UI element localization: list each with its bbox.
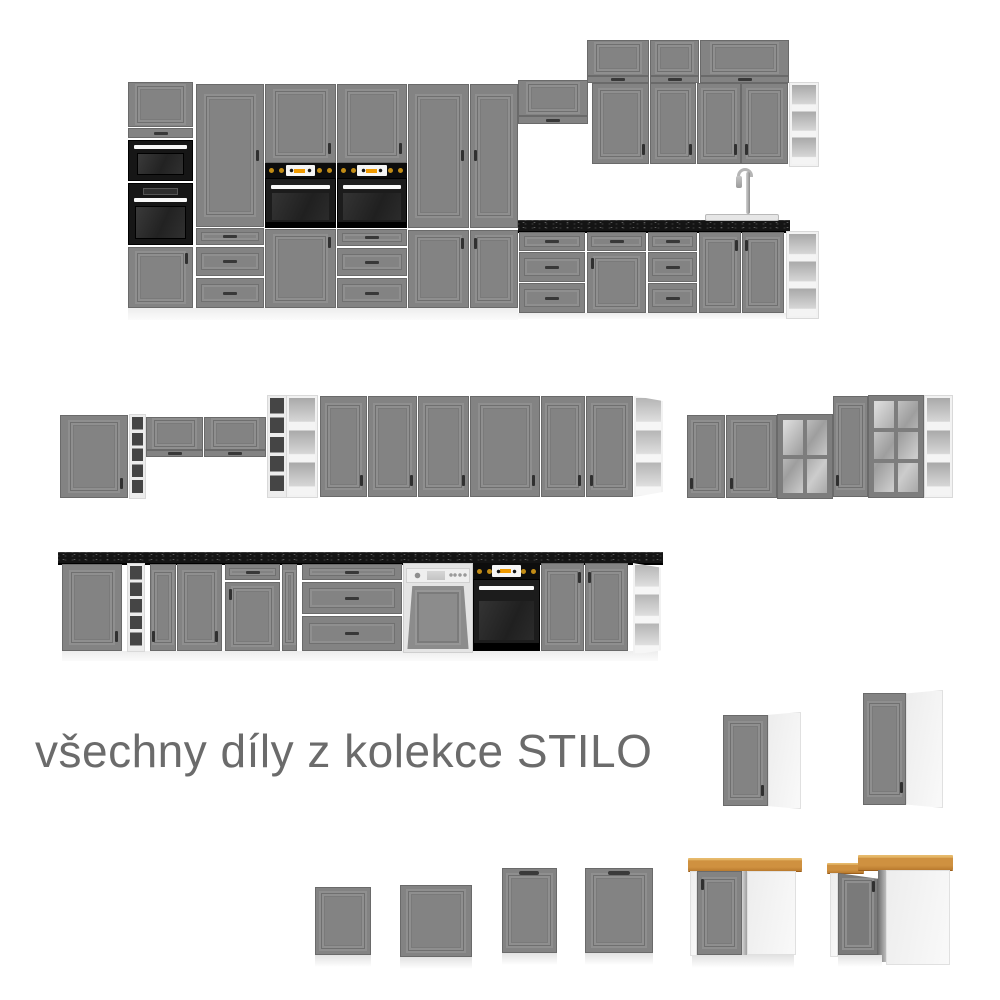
corner-base-cabinet-door bbox=[838, 873, 878, 955]
cabinet-door bbox=[470, 230, 518, 308]
corner-front-panel bbox=[886, 870, 950, 965]
built-in-microwave bbox=[128, 140, 193, 181]
wall-cabinet-door bbox=[418, 396, 469, 497]
flip-door-strip bbox=[204, 450, 266, 457]
panel-base bbox=[502, 953, 557, 965]
oven-control-strip bbox=[337, 163, 407, 178]
oak-worktop bbox=[858, 855, 953, 870]
drawer-front bbox=[648, 232, 697, 251]
faucet-spray-head bbox=[736, 176, 742, 188]
open-shelf-unit bbox=[287, 396, 317, 497]
drawer-front bbox=[196, 228, 264, 245]
oven-handle bbox=[479, 586, 535, 590]
drawer-front bbox=[648, 283, 697, 313]
drawer-front bbox=[302, 616, 402, 651]
oven-control-strip bbox=[265, 163, 336, 178]
blind-panel bbox=[747, 871, 796, 955]
flip-up-wall-door bbox=[204, 417, 266, 450]
open-shelf-unit bbox=[925, 396, 952, 497]
cabinet-door bbox=[337, 84, 407, 163]
drawer-front bbox=[337, 278, 407, 308]
base-cabinet-door bbox=[587, 252, 646, 313]
panel-handle bbox=[608, 871, 630, 875]
corner-wall-cabinet-door bbox=[723, 715, 768, 806]
side-panel bbox=[690, 871, 697, 956]
flip-up-wall-door bbox=[700, 40, 789, 76]
filler-door bbox=[282, 564, 297, 651]
drawer-front bbox=[337, 229, 407, 246]
base-cabinet-door bbox=[585, 563, 628, 651]
cabinet-door bbox=[265, 229, 336, 308]
drawer-front bbox=[225, 564, 280, 580]
oven-handle bbox=[134, 198, 187, 202]
panel-base bbox=[400, 957, 472, 969]
drawer-front bbox=[337, 248, 407, 276]
drawer-front bbox=[648, 252, 697, 282]
cabinet-door bbox=[408, 230, 469, 308]
base-cabinet-door bbox=[225, 582, 280, 651]
glass-wall-cabinet-door bbox=[869, 396, 923, 497]
sink-cabinet-door bbox=[699, 232, 741, 313]
built-in-oven bbox=[265, 178, 336, 228]
appliance-front-panel bbox=[400, 885, 472, 957]
drawer-front bbox=[302, 564, 402, 580]
tall-cabinet-door bbox=[408, 84, 469, 228]
corner-side-panel bbox=[906, 690, 943, 808]
drawer-front bbox=[587, 232, 646, 251]
wall-cabinet-door bbox=[541, 396, 585, 497]
oven-window bbox=[135, 206, 185, 240]
corner-base-cabinet-door bbox=[697, 871, 742, 955]
caption-text: všechny díly z kolekce STILO bbox=[35, 724, 652, 778]
oven-control-panel bbox=[286, 165, 316, 176]
flip-up-wall-door bbox=[650, 40, 699, 76]
panel-handle bbox=[519, 871, 539, 875]
wine-rack bbox=[128, 564, 144, 651]
wine-rack bbox=[268, 396, 286, 497]
plinth bbox=[518, 313, 786, 319]
cabinet-door bbox=[128, 82, 193, 127]
plinth bbox=[692, 955, 794, 968]
wall-cabinet-door bbox=[60, 415, 128, 498]
wall-cabinet-door bbox=[741, 83, 788, 164]
base-cabinet-door bbox=[62, 564, 122, 651]
oven-handle bbox=[343, 185, 402, 189]
open-shelf-unit bbox=[787, 232, 818, 318]
oven-control-strip bbox=[473, 563, 540, 579]
plinth bbox=[838, 955, 882, 967]
open-shelf-unit bbox=[790, 83, 818, 166]
oven-control-panel bbox=[357, 165, 386, 176]
flip-door-strip bbox=[700, 76, 789, 83]
flip-up-wall-door bbox=[518, 80, 588, 116]
wall-cabinet-door bbox=[687, 415, 725, 498]
built-in-oven bbox=[337, 178, 407, 228]
side-panel bbox=[830, 873, 838, 957]
plinth bbox=[62, 651, 658, 661]
dishwasher-door-panel bbox=[407, 586, 468, 649]
pantry-door bbox=[196, 84, 264, 227]
corner-open-shelf bbox=[633, 563, 661, 655]
wall-cabinet-door bbox=[650, 83, 696, 164]
flip-door-strip bbox=[650, 76, 699, 83]
wall-cabinet-door bbox=[320, 396, 367, 497]
panel-base bbox=[585, 953, 653, 965]
built-in-oven bbox=[128, 183, 193, 245]
sink bbox=[705, 214, 779, 221]
faucet-body bbox=[746, 172, 750, 214]
flip-up-wall-door bbox=[587, 40, 649, 76]
product-collage: všechny díly z kolekce STILO bbox=[0, 0, 1000, 1000]
base-cabinet-door bbox=[177, 564, 222, 651]
flip-door-strip bbox=[128, 128, 193, 138]
wall-cabinet-door bbox=[470, 396, 540, 497]
dishwasher bbox=[403, 563, 473, 653]
oak-worktop bbox=[688, 858, 802, 871]
wall-cabinet-door bbox=[697, 83, 741, 164]
base-cabinet-door bbox=[150, 564, 176, 651]
drawer-front bbox=[519, 232, 585, 251]
appliance-front-panel bbox=[502, 868, 557, 953]
drawer-front bbox=[519, 252, 585, 282]
drawer-front bbox=[519, 283, 585, 313]
base-cabinet-door bbox=[541, 563, 584, 651]
built-in-oven bbox=[473, 579, 540, 651]
flip-up-wall-door bbox=[146, 417, 203, 450]
oven-handle bbox=[271, 185, 330, 189]
drawer-front bbox=[196, 247, 264, 276]
cabinet-door bbox=[128, 247, 193, 308]
flip-door-strip bbox=[146, 450, 203, 457]
corner-open-shelf bbox=[634, 396, 663, 497]
corner-inner-edge bbox=[878, 870, 886, 962]
corner-wall-cabinet-door bbox=[863, 693, 906, 805]
wall-cabinet-door bbox=[726, 415, 777, 498]
dishwasher-control-panel bbox=[406, 568, 470, 584]
appliance-front-panel bbox=[315, 887, 371, 955]
sink-cabinet-door bbox=[742, 232, 784, 313]
cabinet-door bbox=[265, 84, 336, 163]
microwave-window bbox=[137, 153, 185, 175]
wall-cabinet-door bbox=[592, 83, 649, 164]
oven-display bbox=[143, 188, 178, 195]
tall-cabinet-door bbox=[470, 84, 518, 228]
plinth bbox=[128, 308, 518, 320]
drawer-front bbox=[302, 582, 402, 614]
wall-cabinet-door bbox=[833, 396, 868, 497]
glass-wall-cabinet-door bbox=[778, 415, 832, 498]
flip-door-strip bbox=[518, 116, 588, 124]
microwave-handle bbox=[134, 145, 187, 149]
panel-base bbox=[315, 955, 371, 967]
wine-rack bbox=[130, 415, 145, 498]
oven-control-panel bbox=[492, 565, 520, 576]
corner-side-panel bbox=[768, 712, 801, 809]
drawer-front bbox=[196, 278, 264, 308]
wall-cabinet-door bbox=[368, 396, 417, 497]
appliance-front-panel bbox=[585, 868, 653, 953]
flip-door-strip bbox=[587, 76, 649, 83]
wall-cabinet-door bbox=[586, 396, 633, 497]
